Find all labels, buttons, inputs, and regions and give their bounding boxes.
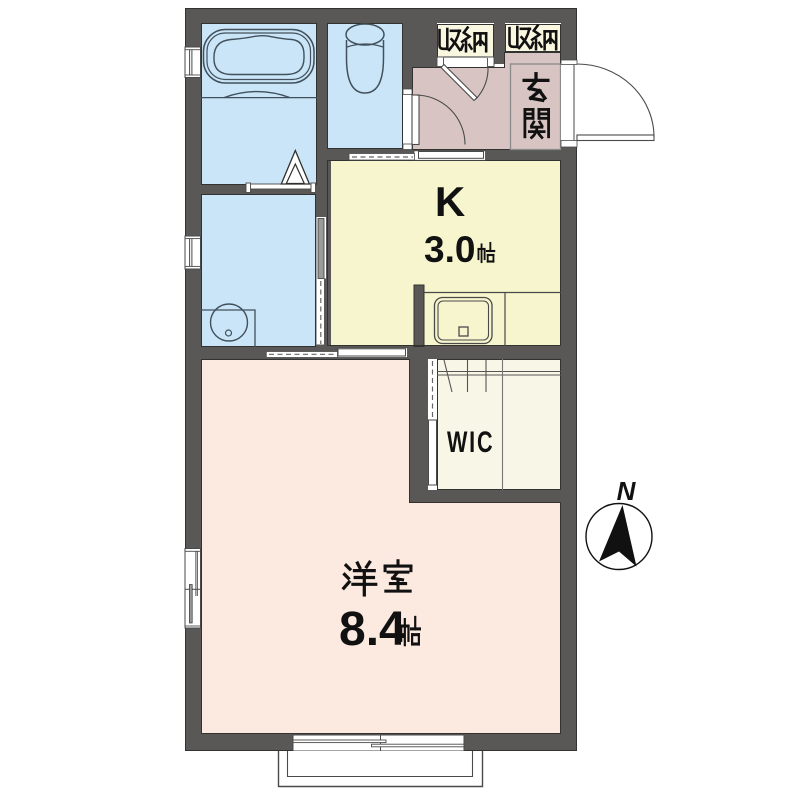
svg-text:WIC: WIC	[447, 424, 494, 458]
svg-text:N: N	[617, 476, 637, 506]
svg-text:8.4: 8.4	[339, 603, 406, 656]
svg-text:3.0: 3.0	[424, 229, 475, 270]
svg-text:K: K	[435, 178, 465, 225]
